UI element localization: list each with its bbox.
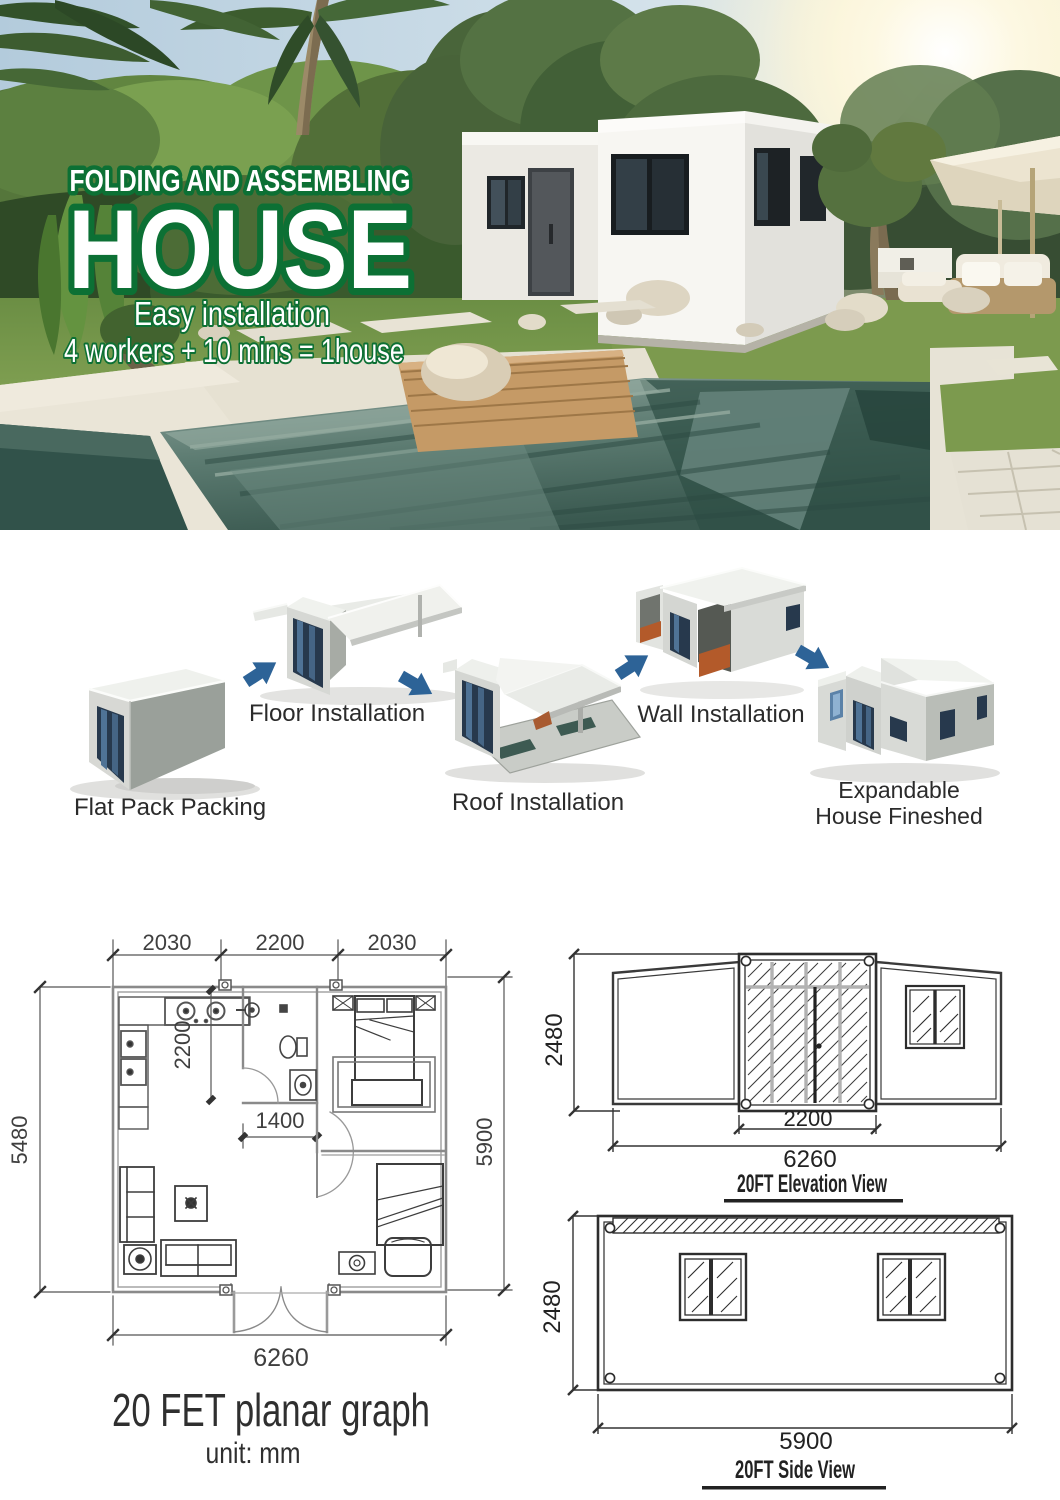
svg-text:2200: 2200 <box>256 930 305 955</box>
svg-text:Easy installation: Easy installation <box>134 295 330 332</box>
svg-text:5900: 5900 <box>472 1118 497 1167</box>
svg-text:2200: 2200 <box>784 1106 833 1131</box>
svg-text:HOUSE: HOUSE <box>68 187 412 312</box>
svg-text:2030: 2030 <box>368 930 417 955</box>
svg-text:House Fineshed: House Fineshed <box>815 803 983 829</box>
svg-text:Floor Installation: Floor Installation <box>249 700 425 727</box>
svg-text:6260: 6260 <box>253 1344 309 1372</box>
svg-text:2030: 2030 <box>143 930 192 955</box>
svg-text:4 workers + 10 mins = 1house: 4 workers + 10 mins = 1house <box>64 332 404 369</box>
svg-text:2480: 2480 <box>539 1280 566 1333</box>
svg-text:Roof Installation: Roof Installation <box>452 789 624 816</box>
svg-text:2200: 2200 <box>170 1021 195 1070</box>
svg-text:Flat Pack Packing: Flat Pack Packing <box>74 794 266 821</box>
svg-text:5900: 5900 <box>779 1428 832 1455</box>
svg-text:20 FET planar graph: 20 FET planar graph <box>112 1384 430 1436</box>
svg-text:6260: 6260 <box>783 1146 836 1173</box>
svg-text:20FT Side View: 20FT Side View <box>735 1456 855 1484</box>
svg-text:20FT Elevation View: 20FT Elevation View <box>737 1170 887 1198</box>
svg-text:2480: 2480 <box>541 1013 568 1066</box>
svg-text:1400: 1400 <box>256 1108 305 1133</box>
svg-text:Wall Installation: Wall Installation <box>637 701 804 728</box>
svg-text:unit: mm: unit: mm <box>206 1437 301 1470</box>
svg-text:Expandable: Expandable <box>838 777 960 803</box>
svg-text:5480: 5480 <box>7 1116 32 1165</box>
